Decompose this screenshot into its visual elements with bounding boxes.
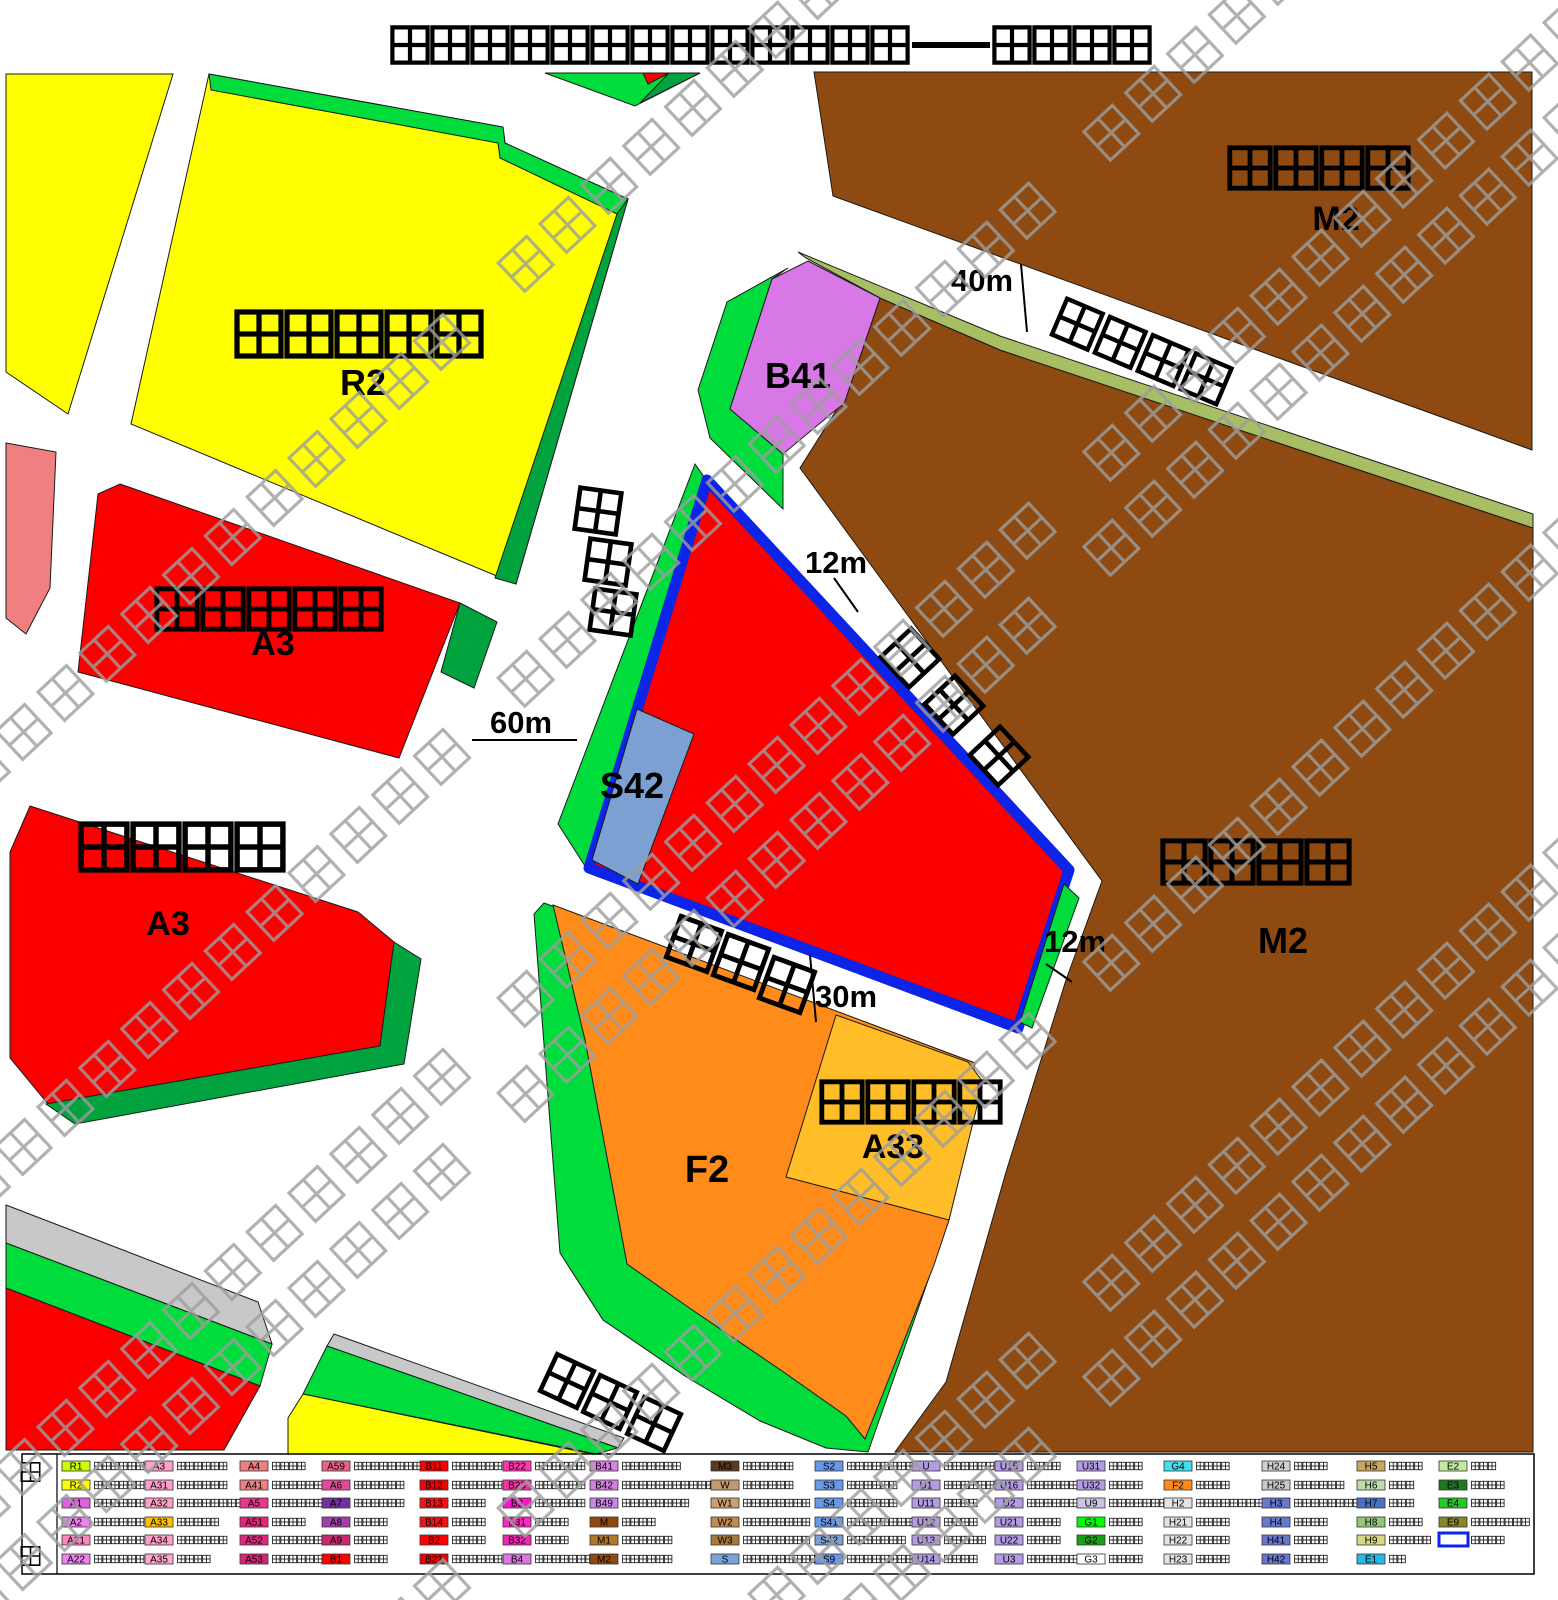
svg-text:U9: U9: [1085, 1499, 1098, 1510]
svg-text:40m: 40m: [951, 263, 1013, 298]
svg-text:G4: G4: [1171, 1462, 1185, 1473]
svg-text:U11: U11: [917, 1499, 935, 1510]
svg-text:M2: M2: [597, 1555, 611, 1566]
svg-text:H9: H9: [1365, 1536, 1378, 1547]
svg-text:E9: E9: [1447, 1518, 1460, 1529]
svg-text:U22: U22: [1000, 1536, 1019, 1547]
svg-text:U21: U21: [1000, 1518, 1019, 1529]
svg-text:H3: H3: [1270, 1499, 1283, 1510]
svg-text:A35: A35: [150, 1555, 168, 1566]
svg-text:12m: 12m: [1044, 924, 1106, 959]
svg-text:W1: W1: [718, 1499, 733, 1510]
svg-text:F2: F2: [685, 1149, 729, 1191]
svg-text:U32: U32: [1082, 1481, 1101, 1492]
svg-text:B1: B1: [330, 1555, 343, 1566]
svg-text:A9: A9: [330, 1536, 343, 1547]
svg-text:B14: B14: [425, 1518, 443, 1529]
svg-text:G2: G2: [1084, 1536, 1098, 1547]
svg-text:A41: A41: [245, 1481, 263, 1492]
svg-text:H7: H7: [1365, 1499, 1378, 1510]
svg-text:B49: B49: [595, 1499, 613, 1510]
svg-text:S42: S42: [600, 765, 664, 806]
svg-text:B41: B41: [765, 355, 831, 396]
svg-text:B13: B13: [425, 1499, 443, 1510]
svg-text:W2: W2: [718, 1518, 733, 1529]
svg-text:A7: A7: [330, 1499, 343, 1510]
svg-text:E3: E3: [1447, 1481, 1460, 1492]
svg-text:A53: A53: [245, 1555, 263, 1566]
svg-text:60m: 60m: [490, 705, 552, 740]
svg-text:H21: H21: [1169, 1518, 1188, 1529]
svg-text:A8: A8: [330, 1518, 343, 1529]
svg-text:A32: A32: [150, 1499, 168, 1510]
svg-text:A5: A5: [248, 1499, 261, 1510]
svg-text:G1: G1: [1084, 1518, 1098, 1529]
svg-text:H24: H24: [1267, 1462, 1286, 1473]
svg-text:H5: H5: [1365, 1462, 1378, 1473]
svg-text:A3: A3: [251, 625, 294, 663]
svg-text:S2: S2: [823, 1462, 836, 1473]
svg-text:A6: A6: [330, 1481, 343, 1492]
svg-text:W3: W3: [718, 1536, 733, 1547]
svg-text:H2: H2: [1172, 1499, 1185, 1510]
svg-text:30m: 30m: [815, 979, 877, 1014]
svg-text:H42: H42: [1267, 1555, 1286, 1566]
svg-text:A51: A51: [245, 1518, 263, 1529]
svg-text:E4: E4: [1447, 1499, 1460, 1510]
svg-text:F2: F2: [1172, 1481, 1184, 1492]
svg-text:A31: A31: [150, 1481, 168, 1492]
svg-text:M: M: [600, 1518, 608, 1529]
svg-text:A33: A33: [150, 1518, 168, 1529]
svg-text:A52: A52: [245, 1536, 263, 1547]
svg-text:A4: A4: [248, 1462, 261, 1473]
svg-text:B4: B4: [511, 1555, 524, 1566]
svg-text:B41: B41: [595, 1462, 613, 1473]
svg-text:A3: A3: [146, 905, 189, 943]
svg-text:B2: B2: [428, 1536, 441, 1547]
svg-text:E2: E2: [1447, 1462, 1460, 1473]
svg-text:H6: H6: [1365, 1481, 1378, 1492]
svg-text:M2: M2: [1258, 920, 1308, 961]
svg-text:H25: H25: [1267, 1481, 1286, 1492]
svg-text:B12: B12: [425, 1481, 443, 1492]
svg-text:B42: B42: [595, 1481, 613, 1492]
svg-text:S: S: [722, 1555, 729, 1566]
svg-text:U3: U3: [1003, 1555, 1016, 1566]
svg-text:A34: A34: [150, 1536, 168, 1547]
svg-text:H4: H4: [1270, 1518, 1283, 1529]
svg-text:A59: A59: [327, 1462, 345, 1473]
svg-text:E1: E1: [1365, 1555, 1378, 1566]
svg-text:H23: H23: [1169, 1555, 1188, 1566]
svg-text:M3: M3: [718, 1462, 732, 1473]
svg-text:H41: H41: [1267, 1536, 1286, 1547]
svg-text:H8: H8: [1365, 1518, 1378, 1529]
svg-text:U31: U31: [1082, 1462, 1101, 1473]
svg-text:B22: B22: [508, 1462, 526, 1473]
svg-text:S4: S4: [823, 1499, 836, 1510]
svg-text:G3: G3: [1084, 1555, 1098, 1566]
svg-text:A22: A22: [67, 1555, 85, 1566]
svg-text:M1: M1: [597, 1536, 611, 1547]
svg-text:H22: H22: [1169, 1536, 1188, 1547]
svg-text:R1: R1: [70, 1462, 83, 1473]
svg-text:B11: B11: [425, 1462, 442, 1473]
svg-text:S3: S3: [823, 1481, 836, 1492]
svg-text:W: W: [720, 1481, 730, 1492]
svg-text:12m: 12m: [805, 545, 867, 580]
